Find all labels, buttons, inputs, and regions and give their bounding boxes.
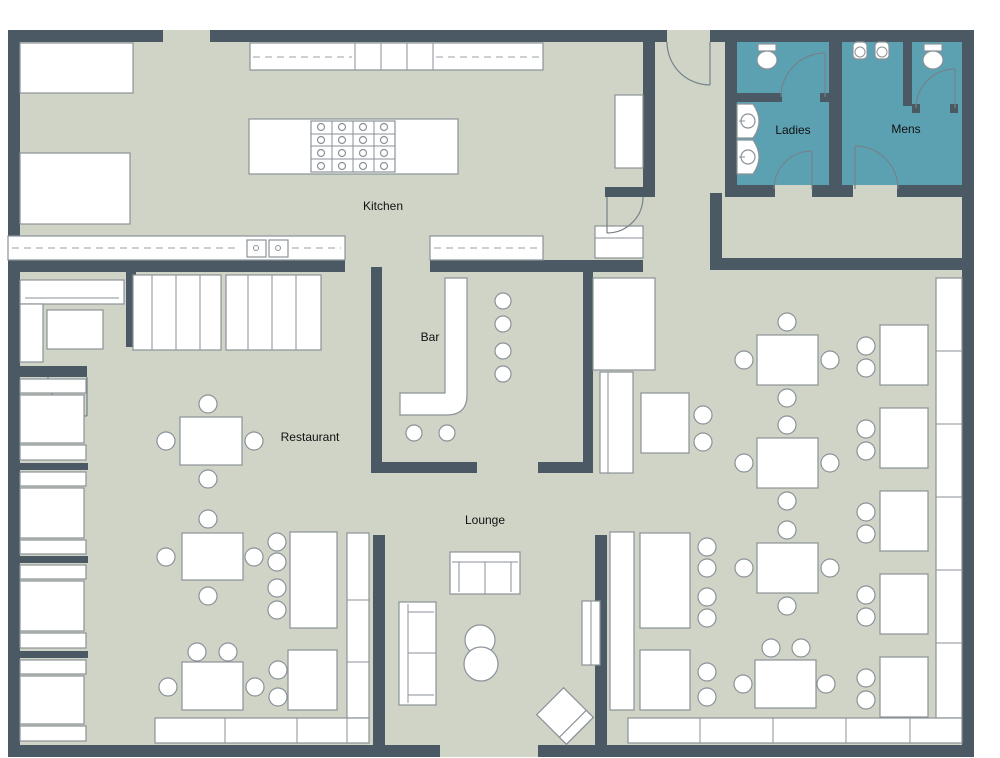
bar-wall (538, 462, 593, 473)
kitchen-wall (430, 260, 643, 272)
wall-booth (20, 565, 86, 648)
bar-stool (439, 425, 455, 441)
floor-plan: Kitchen Ladies Mens (0, 0, 1000, 758)
wall-segment (8, 30, 20, 757)
kitchen-wall (8, 260, 345, 272)
dining-table (880, 574, 928, 634)
wall-segment (962, 30, 974, 757)
ladies-stall-wall (737, 93, 782, 102)
kitchen-label: Kitchen (363, 199, 403, 213)
bar-stool (495, 366, 511, 382)
wall-booth (20, 379, 86, 460)
restaurant-label: Restaurant (281, 430, 340, 444)
booth-divider-wall (8, 463, 88, 470)
bench-seat (936, 278, 962, 718)
dining-table (182, 662, 243, 710)
sofa (399, 602, 436, 705)
bench-seat (347, 533, 369, 718)
ladies-label: Ladies (775, 123, 810, 137)
dining-table (755, 660, 816, 708)
wall-segment (8, 745, 440, 757)
dining-table (182, 533, 243, 580)
restroom-wall (812, 185, 853, 197)
vestibule-door-opening (667, 30, 710, 42)
kitchen-appliance (20, 43, 133, 93)
bar-label: Bar (421, 330, 440, 344)
kitchen-wall (643, 42, 655, 187)
wall-segment (8, 30, 163, 42)
dining-table (640, 533, 690, 628)
service-cabinet (600, 372, 633, 473)
wardrobe-cabinet (133, 275, 221, 350)
bar-stool (406, 425, 422, 441)
booth-divider-wall (8, 651, 88, 658)
dining-table (288, 650, 337, 710)
dining-table (880, 491, 928, 551)
floor-plan-canvas: Kitchen Ladies Mens (0, 0, 1000, 758)
wall-segment (538, 745, 974, 757)
wall-segment (210, 30, 667, 42)
mens-room-floor (842, 42, 962, 185)
mens-door-stub (950, 104, 958, 113)
booth-divider-wall (8, 556, 88, 563)
wall-segment (710, 30, 974, 42)
bench-seat (628, 718, 962, 743)
bar-stool (495, 316, 511, 332)
range-burners (311, 121, 395, 172)
dining-table (640, 650, 690, 710)
corridor-wall (710, 193, 722, 270)
bar-wall (583, 270, 593, 473)
lounge-wall (373, 535, 385, 745)
toilet (923, 44, 943, 69)
kitchen-appliance (20, 153, 130, 224)
wardrobe-cabinet (226, 275, 321, 350)
lounge-label: Lounge (465, 513, 505, 527)
restroom-divider-wall (829, 42, 842, 197)
dining-table (290, 532, 337, 628)
bar-stool (495, 343, 511, 359)
bar-stool (495, 293, 511, 309)
wall-booth (20, 472, 86, 554)
dining-table (180, 417, 242, 465)
sink (737, 140, 759, 174)
wall-booth (20, 660, 86, 741)
dining-table (757, 438, 818, 488)
bench-seat (610, 532, 634, 710)
dining-table (757, 543, 818, 593)
service-station (593, 278, 655, 370)
dining-table (880, 325, 928, 385)
dining-table (880, 408, 928, 468)
table-with-chairs (268, 532, 337, 628)
restroom-wall (725, 185, 775, 197)
dining-table (757, 335, 818, 385)
bar-wall (371, 462, 477, 473)
top-wall-opening (163, 30, 210, 42)
toilet (757, 44, 777, 69)
mens-label: Mens (891, 122, 920, 136)
dining-wall (722, 258, 962, 270)
restroom-wall (897, 185, 962, 197)
round-side-table (464, 647, 498, 681)
mens-partition-wall (903, 42, 912, 106)
bar-wall (371, 267, 382, 473)
dining-table (880, 657, 928, 717)
entry-room-wall (8, 366, 87, 377)
main-entrance-opening (440, 745, 538, 757)
kitchen-shelf (615, 95, 643, 168)
console-cabinet (582, 601, 600, 665)
sofa (450, 552, 520, 594)
dining-table (641, 393, 689, 453)
sink (737, 104, 759, 138)
restroom-wall (725, 30, 737, 197)
kitchen-door-stub (605, 187, 655, 197)
coffee-table (47, 310, 103, 349)
bench-seat (155, 718, 369, 743)
